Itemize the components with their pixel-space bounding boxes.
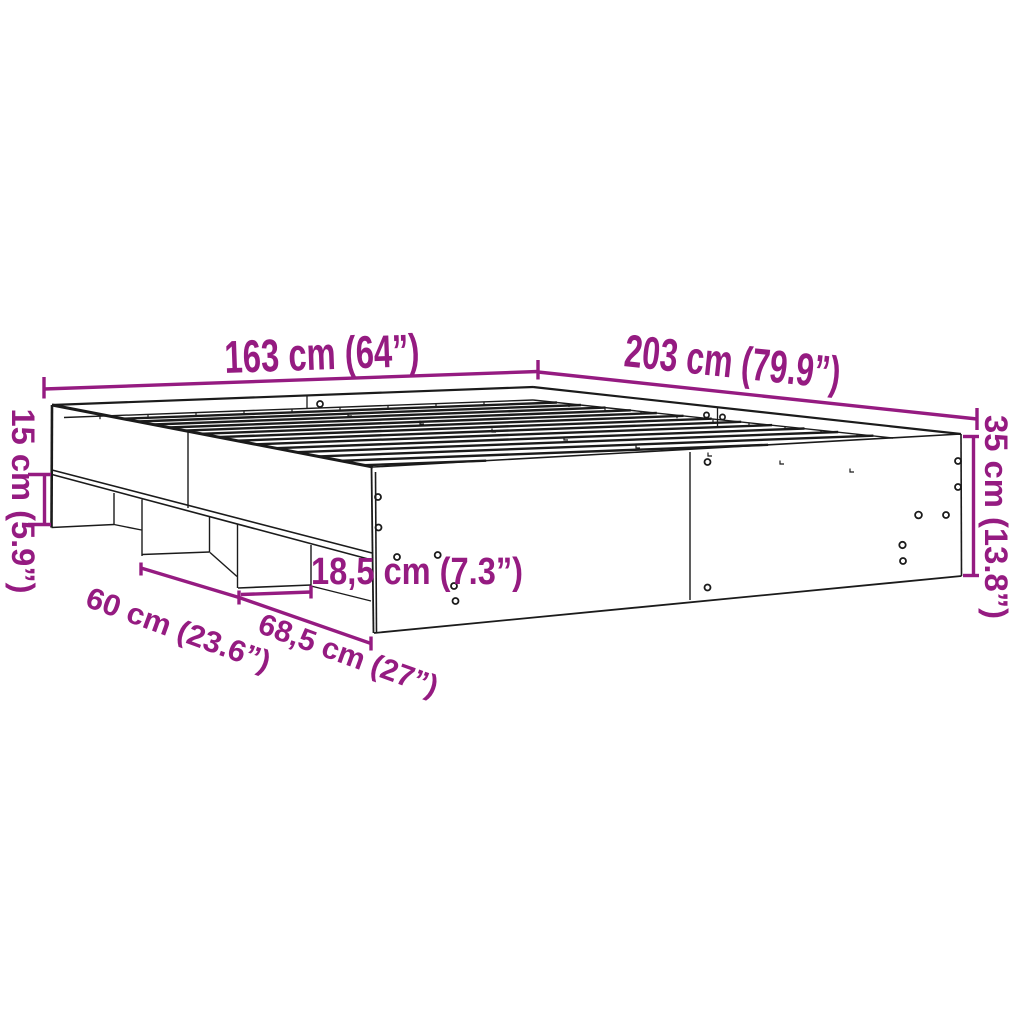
svg-text:18,5 cm (7.3”): 18,5 cm (7.3”) xyxy=(311,551,523,593)
svg-text:15 cm (5.9”): 15 cm (5.9”) xyxy=(5,409,41,594)
svg-text:163 cm (64”): 163 cm (64”) xyxy=(224,324,421,383)
svg-text:35 cm (13.8”): 35 cm (13.8”) xyxy=(978,415,1014,619)
